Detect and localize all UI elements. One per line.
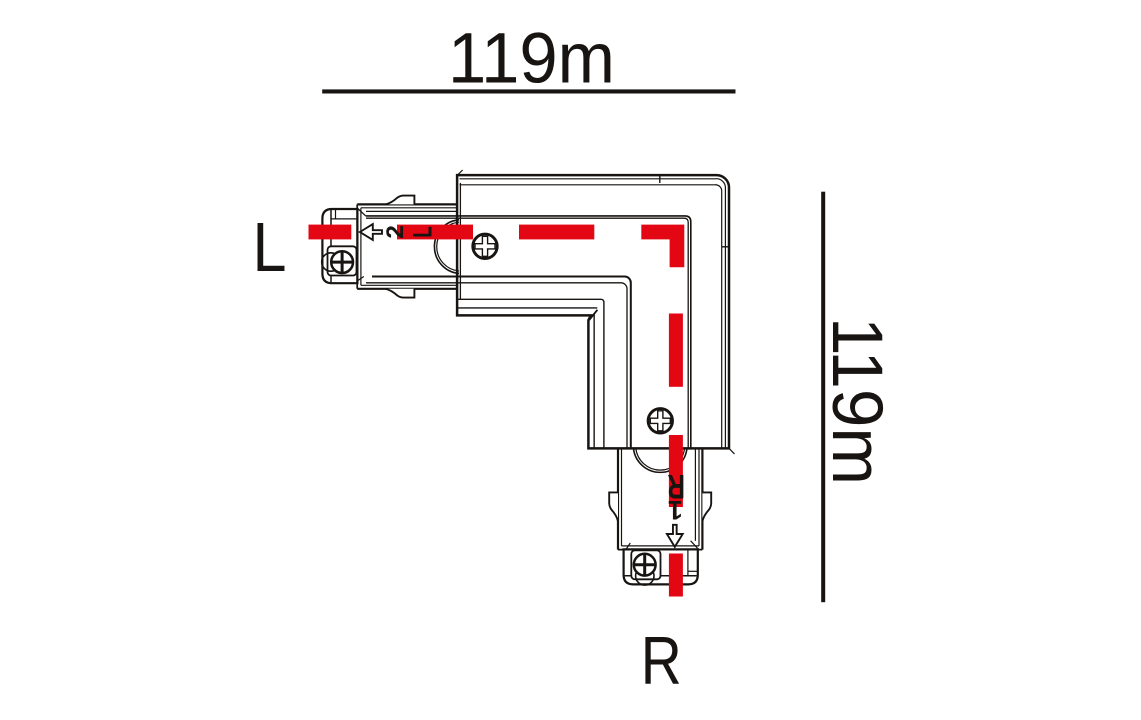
svg-text:R: R: [641, 623, 682, 699]
svg-text:2: 2: [382, 225, 409, 239]
svg-text:1: 1: [668, 495, 683, 525]
svg-text:119m: 119m: [817, 317, 896, 485]
svg-text:L: L: [253, 208, 287, 286]
svg-text:119m: 119m: [448, 20, 615, 99]
svg-text:L: L: [408, 226, 438, 238]
